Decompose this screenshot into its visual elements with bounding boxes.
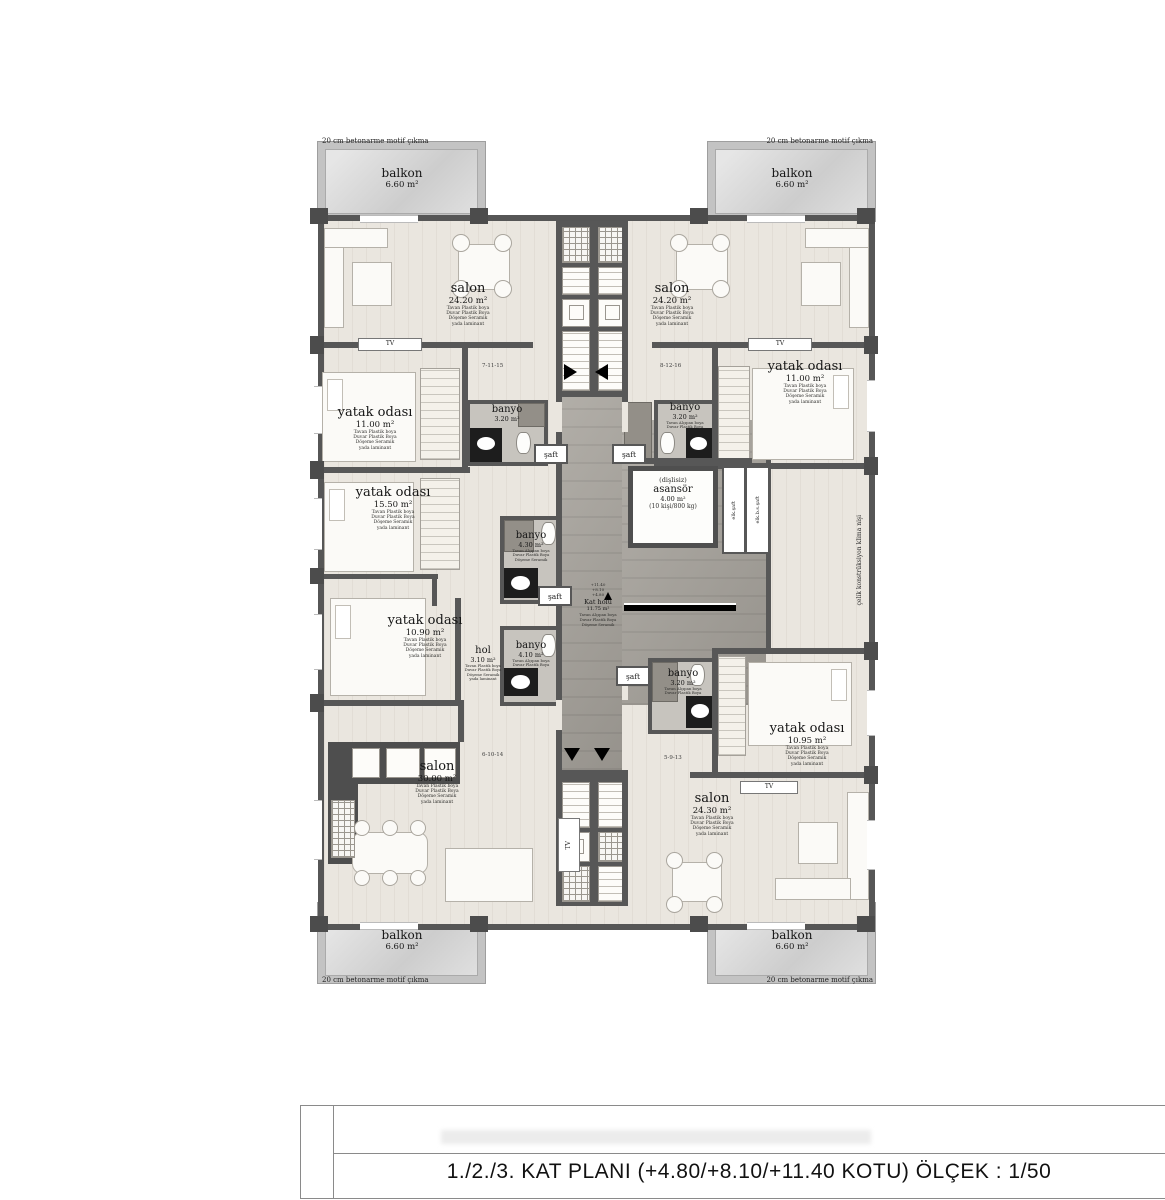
room-label-banyo-tr: banyo 3.20 m² Tavan Alçıpan boya Duvar P…	[650, 402, 720, 430]
plan-title: 1./2./3. KAT PLANI (+4.80/+8.10/+11.40 K…	[333, 1160, 1165, 1184]
finish-note-line: Döşeme Seramik	[500, 558, 562, 562]
finish-note-line: Duvar Plastik Boya	[650, 425, 720, 429]
stair-hall-label: +11.40 +8.10 +4.80 Kat holü 11.75 m² Tav…	[566, 582, 630, 627]
wall-pier	[857, 916, 875, 932]
finish-note-line: yada laminant	[387, 800, 487, 805]
wall-pier	[310, 568, 324, 584]
kat-holu-name: Kat holü	[566, 598, 630, 606]
edge-note-bottom-left: 20 cm betonarme motif çıkma	[322, 976, 492, 984]
wall-pier	[864, 336, 878, 354]
sink-cabinet	[562, 299, 590, 327]
wall-pier	[690, 916, 708, 932]
elk-shaft-label: elk.şaft	[731, 501, 737, 520]
elevator-area: 4.00 m²	[626, 495, 720, 503]
door-opening	[622, 402, 628, 432]
finish-note-line: yada laminant	[418, 322, 518, 327]
chair-symbol	[354, 870, 370, 886]
door-opening	[556, 402, 562, 432]
title-block-left-cell	[301, 1106, 334, 1198]
elevator-capacity: (10 kişi/800 kg)	[626, 503, 720, 511]
wall-segment	[318, 342, 533, 348]
cabinet-symbol	[562, 331, 590, 391]
window	[867, 820, 875, 870]
shaft-box: şaft	[534, 444, 568, 464]
room-name: balkon	[742, 166, 842, 180]
room-label-banyo-ml: banyo 4.30 m² Tavan Alçıpan boya Duvar P…	[500, 530, 562, 562]
finish-note-line: yada laminant	[662, 832, 762, 837]
finish-note-line: yada laminant	[755, 400, 855, 405]
room-name: banyo	[648, 668, 718, 679]
room-name: salon	[418, 282, 518, 296]
coffee-table-symbol	[801, 262, 841, 306]
room-area: 6.60 m²	[742, 942, 842, 952]
stove-symbol	[562, 227, 590, 263]
room-label-yatak-br: yatak odası 10.95 m² Tavan Plastik boya …	[757, 722, 857, 767]
elk-shaft: elk.şaft	[722, 466, 746, 554]
chair-symbol	[354, 820, 370, 836]
room-label-balkon-br: balkon 6.60 m²	[742, 928, 842, 952]
wall-pier	[310, 916, 328, 932]
title-block-divider	[333, 1153, 1165, 1154]
room-area: 6.60 m²	[352, 180, 452, 190]
room-name: yatak odası	[343, 486, 443, 500]
closet-symbol	[420, 368, 460, 460]
tv-label: TV	[564, 841, 574, 849]
shaft-box: şaft	[612, 444, 646, 464]
elevator-name: asansör	[626, 484, 720, 495]
chair-symbol	[712, 234, 730, 252]
room-area: 15.50 m²	[343, 500, 443, 510]
room-label-yatak-ml: yatak odası 15.50 m² Tavan Plastik boya …	[343, 486, 443, 531]
closet-symbol	[718, 656, 746, 756]
window	[314, 614, 322, 670]
tv-marker: TV	[358, 338, 422, 351]
wall-pier	[310, 336, 324, 354]
shaft-box: şaft	[616, 666, 650, 686]
chair-symbol	[666, 896, 683, 913]
chair-symbol	[666, 852, 683, 869]
room-area: 24.20 m²	[622, 296, 722, 306]
unit-number-top-left: 7-11-15	[482, 363, 503, 369]
wall-segment	[712, 648, 875, 654]
unit-number-bottom-left: 6-10-14	[482, 752, 503, 758]
wall-segment	[556, 221, 562, 770]
arrow-icon	[595, 364, 608, 380]
window	[314, 498, 322, 550]
edge-note-top-right: 20 cm betonarme motif çıkma	[703, 137, 873, 145]
elevator-prefix: (dişlisiz)	[626, 476, 720, 484]
watermark	[441, 1130, 871, 1144]
room-name: yatak odası	[325, 406, 425, 420]
wall-segment	[556, 770, 628, 776]
wall-segment	[458, 700, 464, 742]
finish-note-line: yada laminant	[757, 762, 857, 767]
window	[314, 800, 322, 860]
sink-icon	[511, 576, 530, 590]
room-name: balkon	[742, 928, 842, 942]
room-label-salon-tr: salon 24.20 m² Tavan Plastik boya Duvar …	[622, 282, 722, 327]
floor-plan-page: 20 cm betonarme motif çıkma 20 cm betona…	[0, 0, 1165, 1200]
pillow-symbol	[831, 669, 847, 701]
arrow-icon	[564, 748, 580, 761]
shaft-label: şaft	[622, 450, 636, 459]
room-label-hol: hol 3.10 m² Tavan Plastik boya Duvar Pla…	[452, 645, 514, 682]
shaft-label: şaft	[544, 450, 558, 459]
wall-segment	[690, 772, 875, 778]
elk-bs-shaft: elk.b.s.şaft	[745, 466, 770, 554]
room-area: 30.00 m²	[387, 774, 487, 784]
room-label-balkon-tr: balkon 6.60 m²	[742, 166, 842, 190]
side-note: çelik konstrüksiyon klima nişi	[852, 470, 866, 650]
wall-pier	[864, 642, 878, 660]
door-opening	[556, 700, 562, 730]
cabinet-symbol	[562, 267, 590, 295]
pillow-symbol	[335, 605, 351, 639]
window	[867, 690, 875, 736]
wall-pier	[690, 208, 708, 224]
wall-pier	[864, 457, 878, 475]
chair-symbol	[382, 820, 398, 836]
wall-pier	[310, 461, 324, 479]
sink-basin	[605, 305, 620, 320]
room-label-banyo-br: banyo 3.20 m² Tavan Alçıpan boya Duvar P…	[648, 668, 718, 696]
coffee-table-symbol	[798, 822, 838, 864]
finish-note-line: yada laminant	[622, 322, 722, 327]
wall-pier	[470, 916, 488, 932]
wall-pier	[470, 208, 488, 224]
unit-number-top-right: 8-12-16	[660, 363, 681, 369]
room-area: 6.60 m²	[742, 180, 842, 190]
tv-label: TV	[776, 340, 784, 347]
elk-bs-shaft-label: elk.b.s.şaft	[755, 496, 761, 524]
room-area: 6.60 m²	[352, 942, 452, 952]
tv-label: TV	[386, 340, 394, 347]
chair-symbol	[410, 870, 426, 886]
room-name: yatak odası	[375, 614, 475, 628]
dining-table-symbol	[352, 832, 428, 874]
room-label-yatak-tr: yatak odası 11.00 m² Tavan Plastik boya …	[755, 360, 855, 405]
room-area: 10.90 m²	[375, 628, 475, 638]
room-label-salon-br: salon 24.30 m² Tavan Plastik boya Duvar …	[662, 792, 762, 837]
wall-pier	[310, 208, 328, 224]
room-name: salon	[387, 760, 487, 774]
window	[314, 386, 322, 434]
sink-icon	[691, 704, 709, 718]
tv-marker: TV	[748, 338, 812, 351]
room-label-salon-bl: salon 30.00 m² Tavan Plastik boya Duvar …	[387, 760, 487, 805]
stove-symbol	[331, 800, 355, 858]
chair-symbol	[706, 896, 723, 913]
appliance-symbol	[352, 748, 380, 778]
toilet-icon	[660, 432, 675, 454]
closet-symbol	[718, 366, 750, 460]
sink-icon	[477, 437, 495, 450]
sink-icon	[690, 437, 707, 450]
room-name: yatak odası	[757, 722, 857, 736]
wall-pier	[864, 766, 878, 784]
arrow-icon	[594, 748, 610, 761]
room-label-balkon-bl: balkon 6.60 m²	[352, 928, 452, 952]
room-name: salon	[662, 792, 762, 806]
room-name: hol	[452, 645, 514, 656]
finish-note-line: yada laminant	[343, 526, 443, 531]
tv-marker: TV	[558, 818, 580, 872]
sofa-symbol	[805, 228, 869, 248]
stair-rail	[624, 603, 736, 611]
room-name: banyo	[500, 530, 562, 541]
finish-note-line: Döşeme Seramik	[566, 622, 630, 627]
chair-symbol	[410, 820, 426, 836]
room-area: 24.20 m²	[418, 296, 518, 306]
coffee-table-symbol	[352, 262, 392, 306]
shaft-label: şaft	[548, 592, 562, 601]
shaft-label: şaft	[626, 672, 640, 681]
room-area: 11.00 m²	[325, 420, 425, 430]
window	[867, 380, 875, 432]
window	[360, 215, 418, 223]
room-area: 10.95 m²	[757, 736, 857, 746]
room-name: balkon	[352, 928, 452, 942]
room-name: balkon	[352, 166, 452, 180]
side-note-text: çelik konstrüksiyon klima nişi	[856, 515, 863, 605]
room-label-banyo-tl: banyo 3.20 m²	[468, 404, 546, 423]
chair-symbol	[452, 234, 470, 252]
finish-note-line: Duvar Plastik Boya	[648, 691, 718, 695]
finish-note-line: yada laminant	[325, 446, 425, 451]
room-area: 24.30 m²	[662, 806, 762, 816]
room-label-salon-tl: salon 24.20 m² Tavan Plastik boya Duvar …	[418, 282, 518, 327]
room-name: banyo	[468, 404, 546, 415]
room-area: 11.00 m²	[755, 374, 855, 384]
window	[747, 215, 805, 223]
sofa-symbol	[324, 228, 388, 248]
wall-segment	[318, 467, 470, 473]
sofa-symbol	[445, 848, 533, 902]
toilet-icon	[516, 432, 531, 454]
chair-symbol	[382, 870, 398, 886]
elevator-label: (dişlisiz) asansör 4.00 m² (10 kişi/800 …	[626, 476, 720, 511]
wall-pier	[857, 208, 875, 224]
room-label-yatak-tl: yatak odası 11.00 m² Tavan Plastik boya …	[325, 406, 425, 451]
chair-symbol	[670, 234, 688, 252]
wall-pier	[310, 694, 324, 712]
edge-note-bottom-right: 20 cm betonarme motif çıkma	[703, 976, 873, 984]
room-name: salon	[622, 282, 722, 296]
unit-number-bottom-right: 5-9-13	[664, 755, 682, 761]
wall-segment	[432, 574, 437, 606]
sofa-symbol	[775, 878, 851, 900]
wall-segment	[622, 776, 628, 906]
edge-note-top-left: 20 cm betonarme motif çıkma	[322, 137, 492, 145]
wall-segment	[318, 574, 438, 579]
chair-symbol	[706, 852, 723, 869]
room-area: 3.20 m²	[468, 415, 546, 423]
title-block: 1./2./3. KAT PLANI (+4.80/+8.10/+11.40 K…	[300, 1105, 1165, 1199]
room-label-balkon-tl: balkon 6.60 m²	[352, 166, 452, 190]
room-name: yatak odası	[755, 360, 855, 374]
sink-basin	[569, 305, 584, 320]
room-name: banyo	[650, 402, 720, 413]
arrow-icon	[564, 364, 577, 380]
chair-symbol	[494, 234, 512, 252]
tv-label: TV	[765, 783, 773, 790]
finish-note-line: yada laminant	[452, 677, 514, 681]
wall-segment	[318, 700, 461, 706]
